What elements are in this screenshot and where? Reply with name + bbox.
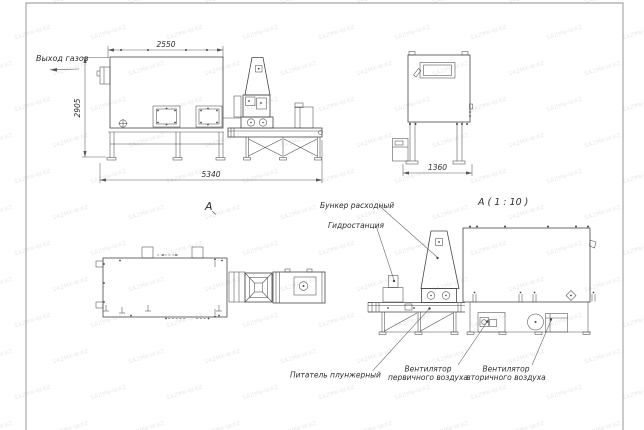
sheet-frame [26,3,623,430]
callout-feed-hopper: Бункер расходный [320,201,394,210]
base-frame-detail [467,302,591,335]
callout-plunger-feeder: Питатель плунжерный [290,371,381,380]
dim-5340-group: 5340 [100,140,322,183]
drawing-canvas: 2550 2905 Выход газов [0,0,644,430]
plunger-box-side [241,117,273,128]
inspection-hatch-2 [196,106,222,127]
plan-view: А [96,200,325,319]
feeder-plan [273,269,325,303]
dim-2905-group: 2905 [73,57,109,157]
furnace-body-side [97,57,223,128]
hopper-assembly-side [223,58,273,129]
hatch-front [414,63,456,79]
gas-outlet-stub [100,67,110,84]
conveyor-truss-side [244,137,322,160]
front-view: 1360 [393,52,473,177]
gas-outlet-callout: Выход газов [36,54,89,72]
callout-feed-hopper-group: Бункер расходный [320,201,439,259]
furnace-body-detail [463,226,596,303]
anchor-marks-plan [103,259,222,318]
hydraulic-station-detail [383,276,403,303]
dim-2905: 2905 [73,98,82,117]
feed-hopper-detail [421,231,459,303]
label-detail-a: А ( 1 : 10 ) [477,197,528,208]
valve-handwheel [119,119,128,128]
support-frame-side [107,132,225,160]
label-gas-outlet: Выход газов [36,54,89,63]
feeder-conveyor-side [228,103,323,160]
legs-front [406,122,465,164]
callout-secondary-fan-group: Вентилятор вторичного воздуха [466,318,552,382]
dim-1360-group: 1360 [403,163,472,176]
feeder-truss-detail [379,312,458,335]
dim-2550: 2550 [156,40,175,49]
hopper-plan [229,272,272,302]
dim-1360: 1360 [428,163,447,172]
callout-hydraulic-station-group: Гидростанция [328,221,395,282]
secondary-fan-detail [528,314,569,333]
inspection-hatch-1 [153,106,180,127]
detail-view: А ( 1 : 10 ) Бункер расходный Гидростанц… [290,197,596,382]
hydro-box-front [393,139,409,162]
dim-5340: 5340 [201,170,220,179]
fan-box-side [295,107,313,128]
side-view: 2550 2905 Выход газов [36,40,323,183]
label-view-a: А [204,200,213,213]
plunger-feeder-detail [368,303,465,313]
door-handle [590,240,597,248]
furnace-body-plan [103,258,227,317]
callout-primary-fan-2: первичного воздуха [388,373,468,382]
drawing-svg: 2550 2905 Выход газов [0,0,644,430]
callout-secondary-fan-2: вторичного воздуха [466,373,546,382]
dim-2550-group: 2550 [108,40,223,58]
